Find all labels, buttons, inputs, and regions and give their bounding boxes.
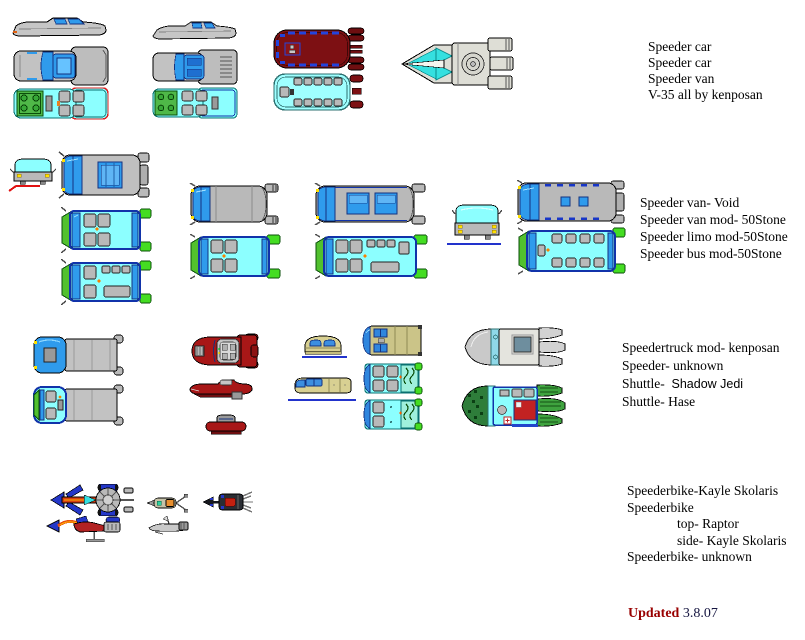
caption-line: Speeder van mod- 50Stone — [640, 211, 788, 228]
speeder-car-1-interior-view-icon — [13, 87, 109, 120]
caption-line: Speedertruck mod- kenposan — [622, 339, 779, 357]
footer-updated: Updated 3.8.07 — [628, 606, 718, 622]
speeder-bus-interior-icon — [516, 227, 627, 275]
shuttle-shadow-jedi-interior-2-icon — [361, 398, 423, 431]
caption-line: Speeder car — [648, 55, 763, 71]
shuttle-shadow-jedi-front-view-icon — [303, 333, 344, 355]
speeder-car-2-top-view-icon — [152, 49, 238, 85]
speeder-car-1-side-view-icon — [11, 16, 109, 41]
updated-label: Updated — [628, 606, 679, 621]
caption-shuttle-name: Shadow Jedi — [672, 377, 744, 391]
shuttle-shadow-jedi-top-view-icon — [361, 324, 423, 357]
speeder-car-2-side-view-icon — [151, 21, 239, 43]
caption-line: Speeder limo mod-50Stone — [640, 228, 788, 245]
speederbike-raptor-side-view-icon — [147, 513, 191, 535]
speeder-limo-interior-icon — [313, 234, 429, 279]
caption-line: Speederbike-Kayle Skolaris — [627, 483, 786, 500]
speeder-unknown-front-view-icon — [203, 413, 249, 437]
caption-group-1: Speeder car Speeder car Speeder van V-35… — [648, 39, 763, 103]
shuttle-hase-interior-icon — [460, 384, 566, 429]
speederbike-raptor-top-view-icon — [146, 493, 188, 513]
caption-group-3: Speedertruck mod- kenposan Speeder- unkn… — [622, 339, 779, 411]
caption-line: Speeder- unknown — [622, 357, 779, 375]
speeder-van-mod-interior-icon — [188, 234, 282, 279]
caption-line: side- Kayle Skolaris — [627, 533, 786, 550]
speeder-van-maroon-top-view-icon — [272, 27, 366, 71]
speederbike-kayle-skolaris-top-view-icon — [50, 484, 136, 516]
caption-line: Shuttle- Hase — [622, 393, 779, 411]
speeder-unknown-top-view-icon — [189, 332, 259, 370]
caption-shuttle-prefix: Shuttle- — [622, 376, 665, 391]
caption-line: Speeder van- Void — [640, 194, 788, 211]
caption-group-4: Speederbike-Kayle Skolaris Speederbike t… — [627, 483, 786, 566]
shuttle-hase-top-view-icon — [462, 327, 566, 367]
caption-line: Speeder van — [648, 71, 763, 87]
speeder-van-void-top-view-icon — [58, 151, 150, 199]
speeder-limo-top-view-icon — [313, 183, 427, 225]
speeder-car-1-top-view-icon — [13, 46, 109, 86]
caption-line: top- Raptor — [627, 516, 786, 533]
caption-line: V-35 all by kenposan — [648, 87, 763, 103]
caption-group-2: Speeder van- Void Speeder van mod- 50Sto… — [640, 194, 788, 262]
caption-line: Speeder car — [648, 39, 763, 55]
red-ground-mark — [8, 184, 42, 192]
speeder-van-void-interior-2-icon — [58, 259, 152, 305]
speeder-van-mod-top-view-icon — [188, 183, 280, 225]
updated-date: 3.8.07 — [683, 606, 718, 621]
speedertruck-top-view-icon — [32, 334, 124, 376]
speeder-van-maroon-interior-view-icon — [272, 72, 366, 112]
shuttle-shadow-jedi-interior-1-icon — [361, 362, 423, 395]
speederbike-unknown-top-view-icon — [202, 491, 254, 513]
shuttle-shadow-jedi-side-view-icon — [293, 373, 353, 397]
v-35-landspeeder-top-view-icon — [400, 36, 515, 92]
speeder-van-void-front-view-icon — [10, 157, 56, 187]
speeder-car-2-interior-view-icon — [152, 87, 238, 119]
blue-ground-line — [288, 399, 356, 401]
caption-line: Speeder bus mod-50Stone — [640, 245, 788, 262]
caption-line: Speederbike- unknown — [627, 549, 786, 566]
speedertruck-interior-icon — [32, 384, 124, 426]
caption-line: Shuttle- Shadow Jedi — [622, 375, 779, 393]
speeder-unknown-side-view-icon — [188, 375, 256, 401]
speeder-van-void-interior-1-icon — [58, 207, 152, 253]
speederbike-kayle-skolaris-side-view-icon — [46, 514, 134, 542]
blue-ground-line — [447, 243, 501, 245]
speeder-bus-top-view-icon — [515, 180, 626, 224]
caption-line: Speederbike — [627, 500, 786, 517]
sprite-sheet-page: Speeder car Speeder car Speeder van V-35… — [0, 0, 805, 640]
blue-ground-line — [302, 356, 347, 358]
speeder-bus-front-view-icon — [452, 202, 502, 242]
